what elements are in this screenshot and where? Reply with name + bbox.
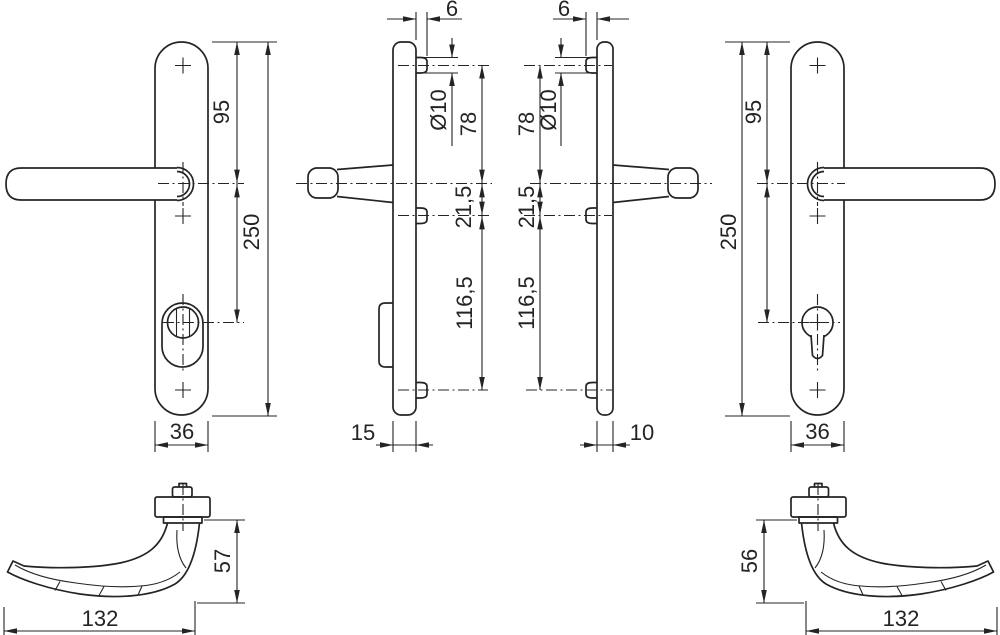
dim-label-95: 95 xyxy=(741,100,766,124)
dim-label-250: 250 xyxy=(716,214,741,251)
dim-label-15: 15 xyxy=(351,420,375,445)
dim-label-78: 78 xyxy=(456,112,481,136)
dim-label-56: 56 xyxy=(737,549,762,573)
dim-label-diameter: Ø10 xyxy=(426,89,451,131)
lever-handle xyxy=(6,168,177,200)
dim-label-95: 95 xyxy=(209,100,234,124)
technical-drawing: 95 250 36 6 Ø10 xyxy=(0,0,1000,635)
dim-label-6: 6 xyxy=(446,0,458,21)
canvas-background xyxy=(0,0,1000,635)
dim-label-10: 10 xyxy=(630,420,654,445)
dim-label-250: 250 xyxy=(239,214,264,251)
dim-label-57: 57 xyxy=(210,549,235,573)
dim-label-21-5: 21,5 xyxy=(451,186,476,229)
dim-label-132: 132 xyxy=(82,606,119,631)
dim-label-132: 132 xyxy=(883,606,920,631)
dim-label-36: 36 xyxy=(805,419,829,444)
dim-label-6: 6 xyxy=(558,0,570,21)
dim-label-116-5: 116,5 xyxy=(452,276,477,329)
drawing-canvas: 95 250 36 6 Ø10 xyxy=(0,0,1000,635)
lever-handle xyxy=(824,168,995,200)
dim-label-21-5: 21,5 xyxy=(514,186,539,229)
dim-label-116-5: 116,5 xyxy=(514,276,539,329)
dim-label-36: 36 xyxy=(170,419,194,444)
dim-label-78: 78 xyxy=(514,112,539,136)
